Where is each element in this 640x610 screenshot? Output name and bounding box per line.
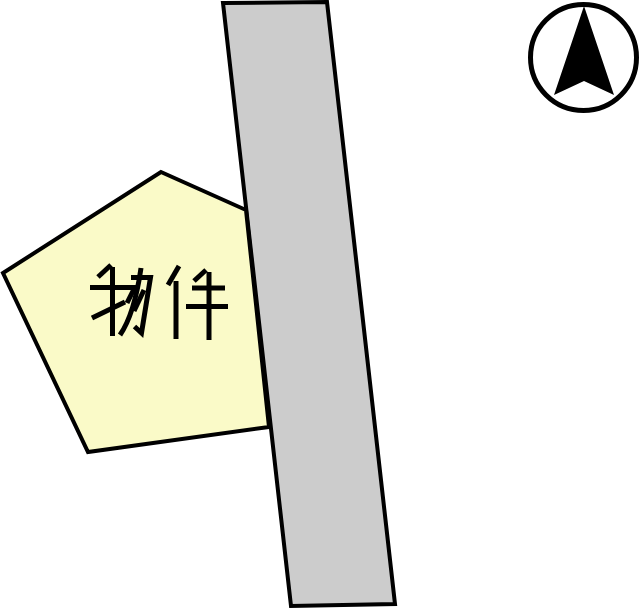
site-plan-canvas bbox=[0, 0, 640, 610]
compass-needle bbox=[554, 6, 614, 95]
north-arrow-icon bbox=[531, 5, 637, 111]
property-parcel-shape bbox=[3, 172, 269, 452]
site-plan: 物件 bbox=[0, 0, 640, 610]
